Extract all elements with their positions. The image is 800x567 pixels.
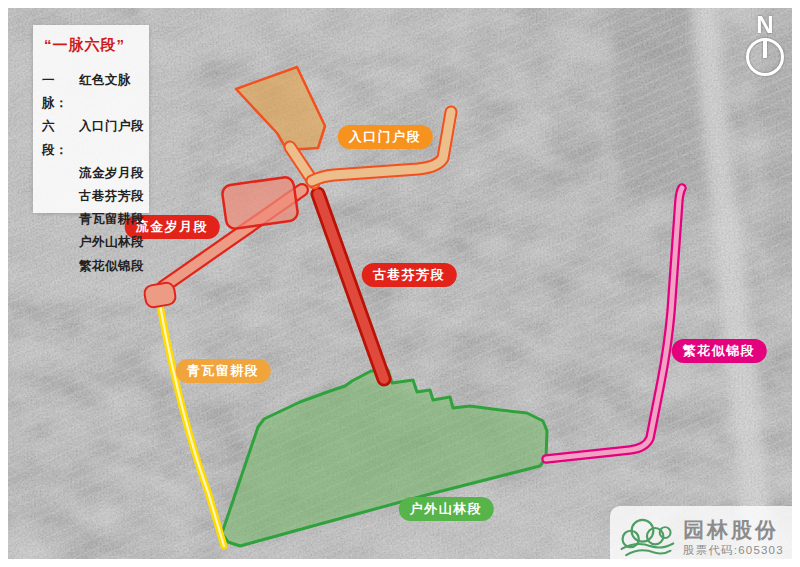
legend-row-segment: 繁花似锦段: [42, 255, 143, 278]
legend-segment-item: 流金岁月段: [79, 162, 144, 185]
liujin-end-knob: [143, 282, 176, 309]
route-label-huwai: 户外山林段: [399, 497, 494, 521]
legend-panel: “一脉六段” 一脉： 红色文脉 六段： 入口门户段 流金岁月段 古巷芬芳段 青瓦…: [33, 25, 149, 213]
route-label-fanhua: 繁花似锦段: [672, 339, 767, 363]
legend-segment-item: 古巷芬芳段: [79, 185, 144, 208]
north-compass: N: [737, 13, 793, 76]
legend-row-segment: 六段： 入口门户段: [42, 115, 143, 161]
legend-row-segment: 流金岁月段: [42, 162, 143, 185]
company-name: 园林股份: [683, 518, 784, 542]
legend-row-segment: 户外山林段: [42, 231, 143, 254]
north-label: N: [737, 13, 793, 37]
legend-segment-item: 繁花似锦段: [79, 255, 144, 278]
legend-segment-item: 青瓦留耕段: [79, 208, 144, 231]
legend-row-segment: 古巷芬芳段: [42, 185, 143, 208]
compass-dial-icon: [746, 38, 784, 76]
route-label-entrance: 入口门户段: [338, 125, 433, 149]
garden-cloud-logo-icon: [618, 515, 676, 561]
legend-row-vein: 一脉： 红色文脉: [42, 69, 143, 115]
legend-segments-label: 六段：: [42, 115, 79, 161]
company-logo-panel: 园林股份 股票代码:605303: [610, 506, 800, 567]
legend-segment-item: 入口门户段: [79, 115, 144, 161]
site-plan-map: “一脉六段” 一脉： 红色文脉 六段： 入口门户段 流金岁月段 古巷芬芳段 青瓦…: [0, 0, 800, 567]
legend-vein-value: 红色文脉: [79, 69, 131, 115]
legend-row-segment: 青瓦留耕段: [42, 208, 143, 231]
legend-vein-label: 一脉：: [42, 69, 79, 115]
compass-needle: [763, 41, 767, 58]
route-label-qingwa: 青瓦留耕段: [176, 359, 271, 383]
stock-code: 股票代码:605303: [683, 543, 784, 558]
legend-title: “一脉六段”: [44, 36, 143, 55]
legend-segment-item: 户外山林段: [79, 231, 144, 254]
route-label-guxiang: 古巷芬芳段: [362, 263, 457, 287]
liujin-block: [221, 176, 298, 230]
